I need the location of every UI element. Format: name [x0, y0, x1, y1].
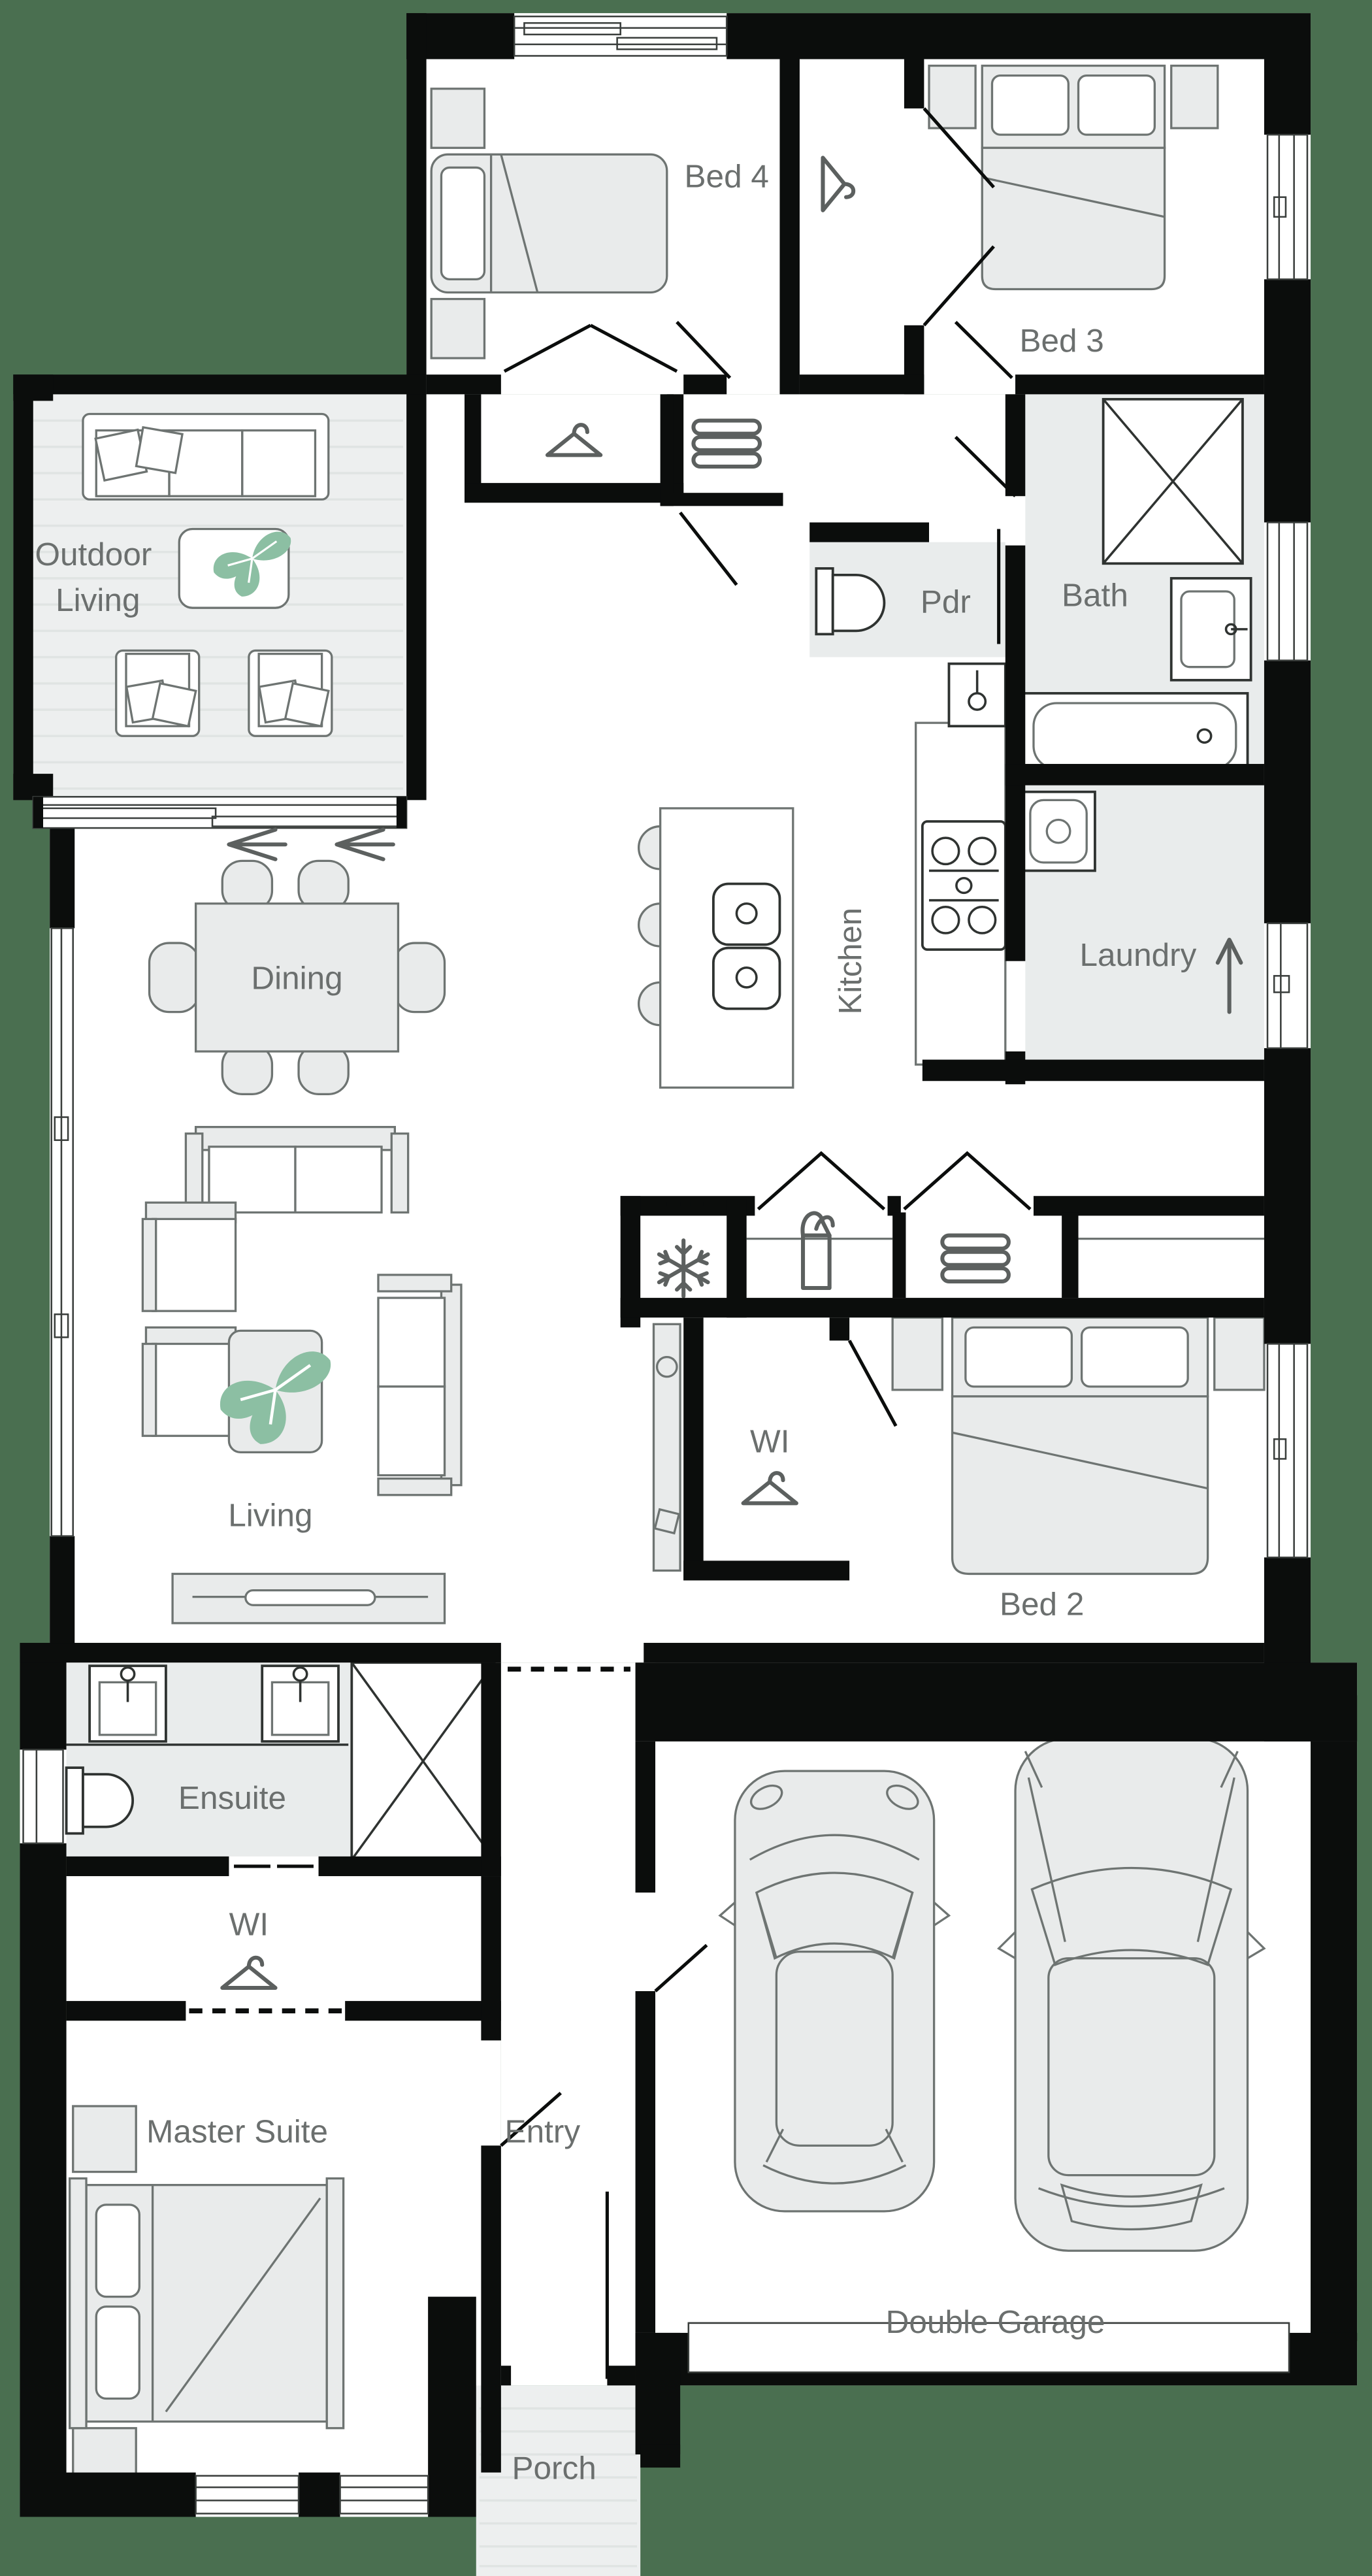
outdoor-armchair — [116, 651, 199, 736]
window-master-1 — [196, 2476, 299, 2514]
window-ensuite — [24, 1749, 63, 1843]
kitchen-bench — [916, 664, 1005, 1065]
window-bed3 — [1267, 135, 1307, 279]
pillow — [966, 1327, 1072, 1387]
room-label-bath: Bath — [1062, 578, 1128, 614]
window-bed2 — [1267, 1344, 1307, 1557]
sink-bowl — [713, 884, 780, 945]
bedside-table — [929, 66, 975, 129]
room-label-porch: Porch — [512, 2451, 596, 2486]
toilet — [833, 575, 885, 631]
armchair — [142, 1202, 235, 1311]
bedside-table — [1215, 1317, 1264, 1390]
chair — [150, 943, 199, 1012]
room-label-master-suite: Master Suite — [146, 2114, 328, 2150]
window-top-bed4 — [514, 16, 727, 56]
outdoor-armchair — [249, 651, 332, 736]
sink-bowl — [713, 948, 780, 1009]
bedside-table — [73, 2106, 136, 2172]
floor-plan-canvas: Bed 4 Bed 3 Outdoor Living Pdr Bath Dini… — [0, 0, 1372, 2576]
room-label-wi-master: WI — [229, 1907, 269, 1943]
pillow — [96, 2205, 139, 2297]
toilet — [83, 1774, 133, 1826]
cooktop — [923, 821, 1005, 949]
bedside-table — [892, 1317, 942, 1390]
bed-headboard — [70, 2179, 86, 2428]
pillow — [441, 167, 484, 279]
bedside-table — [431, 89, 484, 148]
pillow — [992, 76, 1069, 135]
floor-plan-svg: Bed 4 Bed 3 Outdoor Living Pdr Bath Dini… — [0, 0, 1372, 2576]
car-small — [720, 1771, 949, 2211]
pillow — [1079, 76, 1155, 135]
bed — [953, 1396, 1208, 1574]
room-label-entry: Entry — [505, 2114, 581, 2150]
car-suv — [999, 1738, 1264, 2251]
room-label-pdr: Pdr — [921, 584, 971, 620]
pillow — [136, 427, 182, 473]
toilet-cistern — [816, 569, 832, 635]
window-living — [52, 928, 73, 1536]
armchair — [142, 1327, 235, 1436]
sofa — [186, 1127, 408, 1213]
room-label-living: Living — [228, 1498, 312, 1534]
bedside-table — [431, 299, 484, 359]
room-label-wi-bed2: WI — [750, 1424, 789, 1460]
vanity-basin — [262, 1666, 338, 1742]
room-label-bed3: Bed 3 — [1019, 323, 1103, 359]
window-master-2 — [340, 2476, 429, 2514]
room-label-laundry: Laundry — [1079, 937, 1196, 973]
tv-unit — [172, 1574, 444, 1623]
chair — [395, 943, 444, 1012]
soundbar — [246, 1591, 375, 1606]
toilet-cistern — [67, 1768, 83, 1834]
window-bath — [1267, 522, 1307, 660]
room-label-bed2: Bed 2 — [1000, 1587, 1084, 1623]
room-label-dining: Dining — [251, 961, 342, 997]
laundry-door — [1267, 923, 1307, 1048]
bed-footboard — [327, 2179, 343, 2428]
room-label-ensuite: Ensuite — [178, 1780, 286, 1816]
kitchen-island — [639, 808, 793, 1087]
pillow — [1082, 1327, 1188, 1387]
bed — [982, 148, 1164, 289]
stacker-door — [33, 797, 406, 828]
sofa-vertical — [378, 1275, 461, 1495]
room-label-bed4: Bed 4 — [685, 159, 769, 195]
pillow — [96, 2307, 139, 2399]
room-label-double-garage: Double Garage — [886, 2304, 1105, 2340]
wi-bench — [653, 1324, 680, 1570]
vanity-basin — [90, 1666, 166, 1742]
room-label-kitchen: Kitchen — [832, 908, 868, 1015]
bedside-table — [1171, 66, 1218, 129]
